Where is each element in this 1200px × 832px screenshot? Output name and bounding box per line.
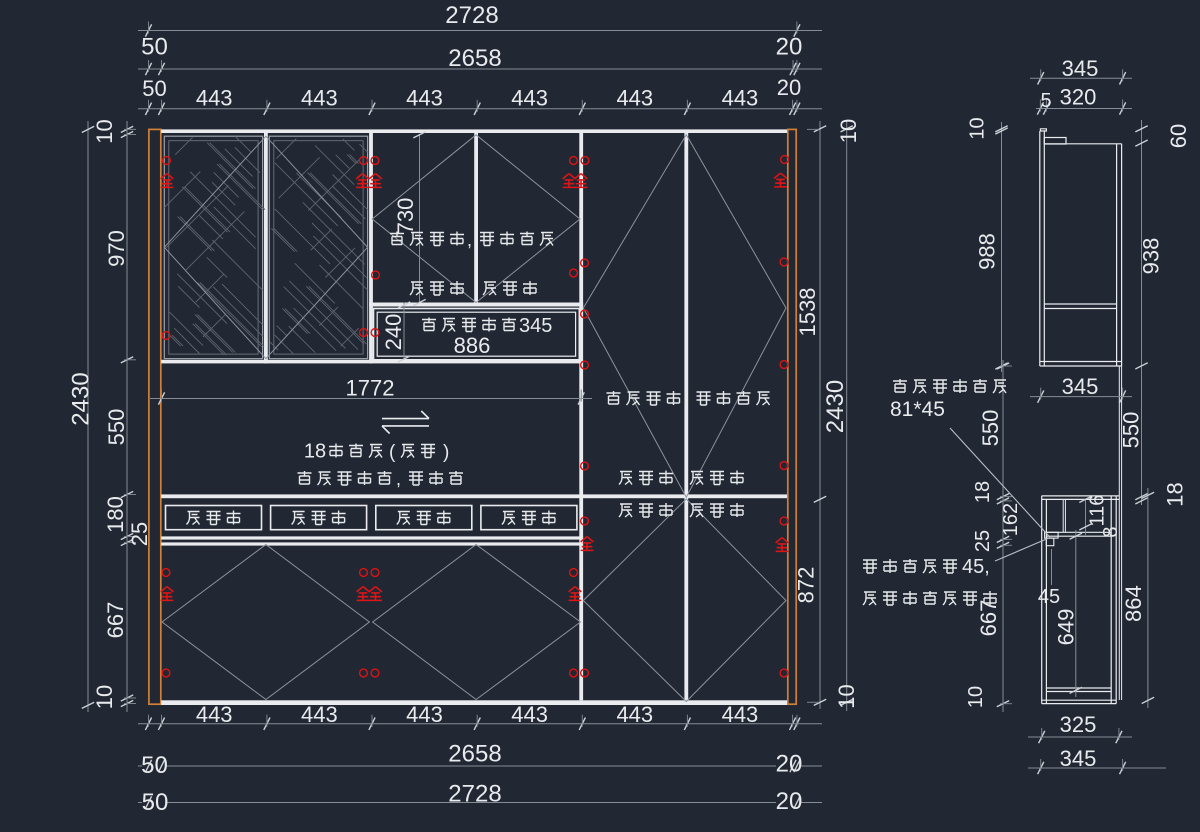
svg-text:345: 345 bbox=[1062, 56, 1099, 81]
svg-text:2430: 2430 bbox=[822, 380, 849, 433]
svg-text:345: 345 bbox=[1062, 374, 1099, 399]
svg-text:,: , bbox=[683, 389, 688, 409]
svg-text:18: 18 bbox=[972, 481, 994, 503]
svg-text:320: 320 bbox=[1060, 84, 1097, 109]
svg-text:2430: 2430 bbox=[68, 372, 95, 425]
svg-text:162: 162 bbox=[1000, 503, 1022, 536]
svg-text:50: 50 bbox=[142, 789, 169, 816]
svg-text:550: 550 bbox=[104, 409, 129, 446]
svg-text:10: 10 bbox=[92, 119, 117, 143]
svg-text:45: 45 bbox=[1038, 586, 1060, 608]
svg-text:2728: 2728 bbox=[445, 2, 498, 29]
svg-text:60: 60 bbox=[1166, 124, 1191, 148]
svg-text:988: 988 bbox=[974, 233, 999, 270]
svg-text:443: 443 bbox=[616, 702, 653, 727]
svg-text:45,: 45, bbox=[962, 556, 990, 578]
svg-text:10: 10 bbox=[965, 686, 987, 708]
svg-text:443: 443 bbox=[511, 85, 548, 110]
svg-text:443: 443 bbox=[301, 702, 338, 727]
svg-text:180: 180 bbox=[103, 496, 128, 533]
svg-text:(: ( bbox=[389, 442, 396, 463]
svg-text:2728: 2728 bbox=[448, 781, 501, 808]
svg-text:5: 5 bbox=[1040, 90, 1051, 112]
svg-text:50: 50 bbox=[141, 34, 168, 61]
svg-text:550: 550 bbox=[978, 410, 1003, 447]
svg-text:443: 443 bbox=[406, 702, 443, 727]
svg-text:443: 443 bbox=[616, 85, 653, 110]
svg-text:938: 938 bbox=[1138, 238, 1163, 275]
svg-text:2658: 2658 bbox=[448, 45, 501, 72]
svg-text:443: 443 bbox=[301, 85, 338, 110]
svg-text:443: 443 bbox=[406, 85, 443, 110]
svg-text:1538: 1538 bbox=[795, 288, 820, 337]
svg-text:240: 240 bbox=[381, 314, 406, 351]
svg-text:730: 730 bbox=[393, 198, 418, 235]
svg-text:81*45: 81*45 bbox=[890, 398, 945, 421]
svg-text:864: 864 bbox=[1121, 585, 1146, 622]
svg-text:20: 20 bbox=[776, 34, 803, 61]
svg-text:10: 10 bbox=[92, 685, 117, 709]
svg-text:345: 345 bbox=[519, 315, 552, 337]
svg-text:50: 50 bbox=[141, 752, 168, 779]
svg-text:1772: 1772 bbox=[346, 375, 395, 400]
svg-text:18: 18 bbox=[304, 441, 326, 463]
svg-text:443: 443 bbox=[511, 702, 548, 727]
svg-text:886: 886 bbox=[454, 333, 491, 358]
svg-text:50: 50 bbox=[142, 76, 166, 101]
svg-text:20: 20 bbox=[776, 788, 803, 815]
svg-text:2658: 2658 bbox=[448, 741, 501, 768]
svg-text:649: 649 bbox=[1054, 609, 1079, 646]
svg-text:443: 443 bbox=[196, 85, 233, 110]
svg-text:667: 667 bbox=[103, 602, 128, 639]
svg-text:443: 443 bbox=[722, 85, 759, 110]
svg-text:): ) bbox=[443, 442, 449, 463]
svg-text:116: 116 bbox=[1087, 495, 1109, 527]
svg-text:18: 18 bbox=[1162, 482, 1187, 506]
svg-text:325: 325 bbox=[1060, 712, 1097, 737]
svg-text:443: 443 bbox=[196, 702, 233, 727]
svg-text:20: 20 bbox=[777, 75, 801, 100]
svg-text:667: 667 bbox=[976, 600, 1001, 637]
svg-text:872: 872 bbox=[793, 567, 818, 604]
svg-text:8: 8 bbox=[1100, 526, 1122, 537]
svg-text:10: 10 bbox=[967, 117, 989, 139]
svg-text:970: 970 bbox=[104, 230, 129, 267]
svg-text:10: 10 bbox=[836, 119, 861, 143]
svg-text:550: 550 bbox=[1118, 412, 1143, 449]
svg-text:20: 20 bbox=[776, 751, 803, 778]
svg-text:,: , bbox=[396, 469, 401, 489]
svg-text:345: 345 bbox=[1060, 746, 1097, 771]
svg-text:,: , bbox=[467, 230, 472, 250]
svg-text:25: 25 bbox=[972, 530, 994, 552]
svg-text:443: 443 bbox=[722, 702, 759, 727]
svg-text:10: 10 bbox=[834, 684, 859, 708]
